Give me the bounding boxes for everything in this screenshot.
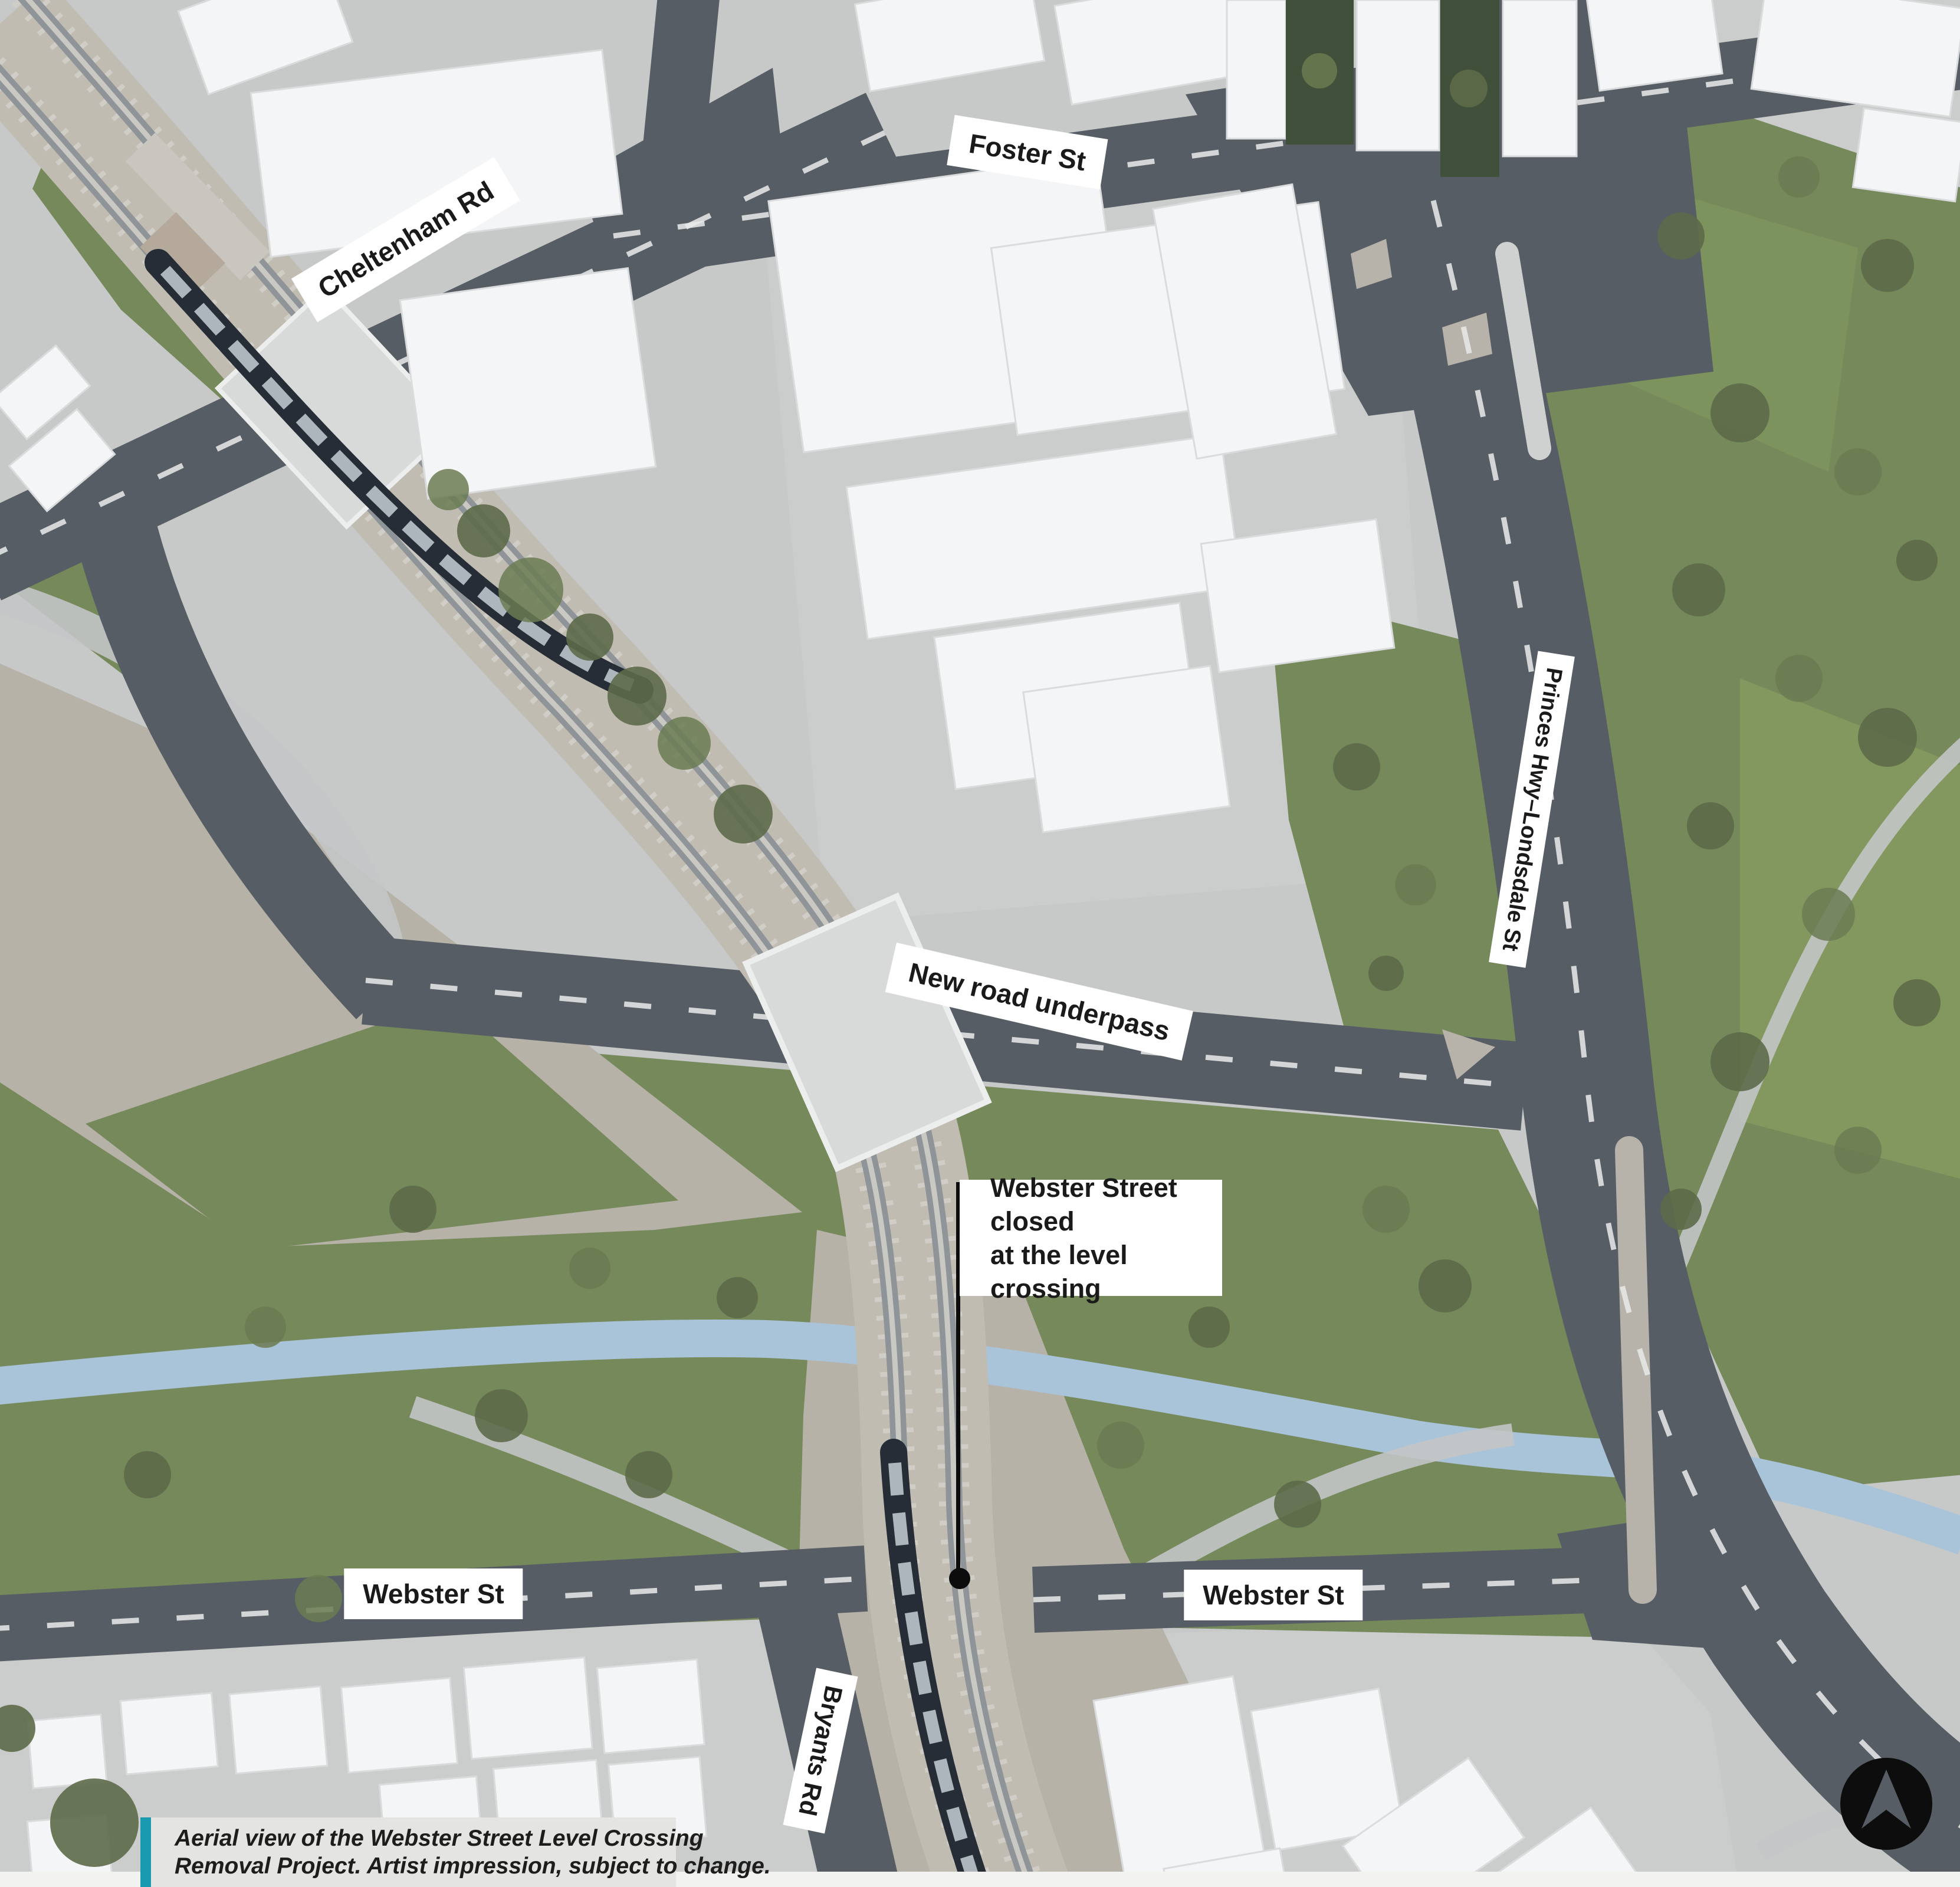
label-webster-st-east: Webster St bbox=[1184, 1570, 1363, 1620]
image-caption: Aerial view of the Webster Street Level … bbox=[140, 1817, 676, 1887]
aerial-map: Foster St Cheltenham Rd Princes Hwy–Lond… bbox=[0, 0, 1960, 1887]
callout-line1: Webster Street closed bbox=[990, 1171, 1222, 1238]
callout-webster-closed: Webster Street closed at the level cross… bbox=[960, 1180, 1222, 1296]
callout-leader-dot bbox=[949, 1568, 970, 1589]
caption-line1: Aerial view of the Webster Street Level … bbox=[175, 1824, 664, 1852]
caption-line2: Removal Project. Artist impression, subj… bbox=[175, 1852, 664, 1880]
callout-line2: at the level crossing bbox=[990, 1238, 1222, 1305]
label-webster-st-west: Webster St bbox=[344, 1568, 523, 1619]
